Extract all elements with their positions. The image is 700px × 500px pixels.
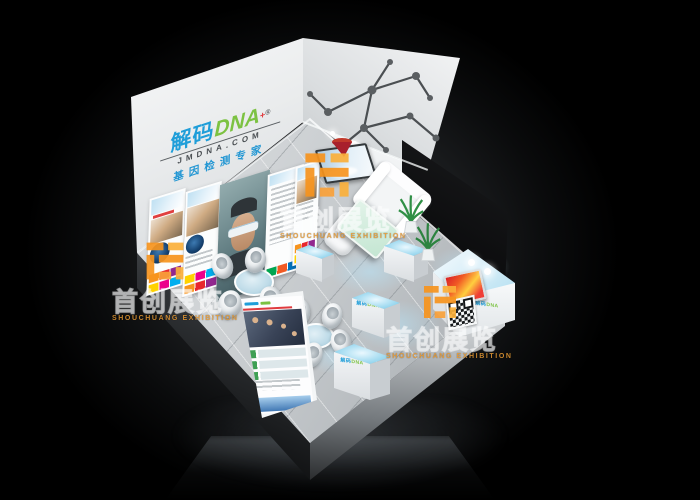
watermark-en-text: SHOUCHUANG EXHIBITION — [280, 233, 440, 240]
partition-content-row — [247, 348, 306, 359]
watermark-cn-text: 首创展览 — [112, 289, 272, 315]
watermark: 首创展览 SHOUCHUANG EXHIBITION — [386, 282, 546, 360]
counter-light-dot — [484, 268, 491, 275]
counter-light-dot — [468, 259, 475, 266]
watermark: 首创展览 SHOUCHUANG EXHIBITION — [280, 148, 440, 240]
watermark-logo-icon — [142, 238, 188, 284]
registered-mark: ® — [265, 109, 270, 118]
watermark: 首创展览 SHOUCHUANG EXHIBITION — [112, 238, 272, 322]
watermark-en-text: SHOUCHUANG EXHIBITION — [386, 353, 546, 360]
watermark-logo-icon — [420, 282, 460, 322]
ar-glasses — [228, 220, 258, 239]
watermark-cn-text: 首创展览 — [280, 207, 440, 233]
watermark-logo-icon — [300, 148, 354, 202]
person-figure — [292, 331, 298, 336]
partition-content-row — [249, 358, 308, 369]
partition-text-lines — [251, 379, 301, 392]
pedestal-logo-cn: 解码 — [340, 357, 351, 365]
booth-render-stage: 解码DNA+® JMDNA.COM 基因检测专家 — [0, 0, 700, 500]
person-figure — [281, 324, 287, 329]
watermark-cn-text: 首创展览 — [386, 327, 546, 353]
watermark-en-text: SHOUCHUANG EXHIBITION — [112, 315, 272, 322]
display-pedestal-side — [370, 358, 390, 400]
